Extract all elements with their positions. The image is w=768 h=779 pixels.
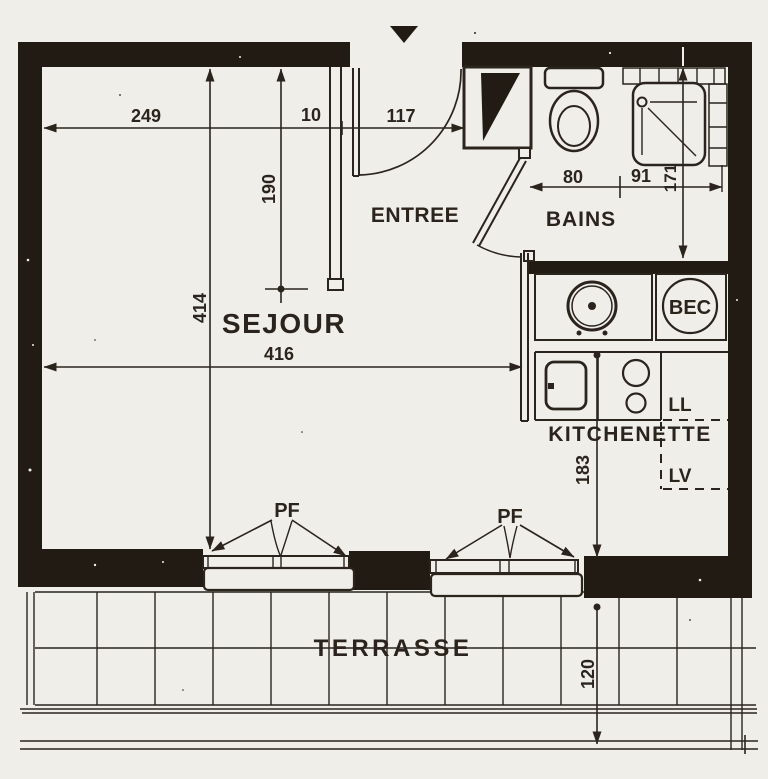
dim-bains-depth: 171 xyxy=(661,164,680,192)
dim-sejour-width: 249 xyxy=(131,106,161,126)
label-bec: BEC xyxy=(669,297,711,319)
dim-kitchen-depth: 183 xyxy=(573,455,593,485)
dim-partition-length: 190 xyxy=(259,174,279,204)
room-label-kitchenette: KITCHENETTE xyxy=(548,423,712,446)
dim-wc: 80 xyxy=(563,167,583,187)
room-label-sejour: SEJOUR xyxy=(222,308,346,339)
label-pf-right: PF xyxy=(497,506,523,528)
wall-bains-bottom xyxy=(529,261,728,274)
balcony-sill-left xyxy=(204,568,354,590)
label-dishwasher: LV xyxy=(669,466,692,487)
label-pf-left: PF xyxy=(274,500,300,522)
wall-left xyxy=(18,42,42,587)
label-washing-machine: LL xyxy=(668,395,692,416)
dim-entry: 117 xyxy=(386,106,415,126)
floor-plan-scan: SEJOUR ENTREE BAINS KITCHENETTE TERRASSE… xyxy=(0,0,768,779)
dim-sejour-depth: 414 xyxy=(190,293,210,323)
dim-interior-width: 416 xyxy=(264,344,294,364)
wall-bottom-left xyxy=(18,549,203,587)
balcony-sill-right xyxy=(431,574,582,596)
dim-shower: 91 xyxy=(631,166,651,186)
wall-right xyxy=(728,42,752,598)
shower-tray xyxy=(633,83,705,165)
floor-plan-drawing: SEJOUR ENTREE BAINS KITCHENETTE TERRASSE… xyxy=(0,0,768,779)
room-label-entree: ENTREE xyxy=(371,204,459,227)
wall-top-right xyxy=(462,42,752,67)
dim-partition: 10 xyxy=(301,105,321,125)
wall-bottom-right xyxy=(584,556,752,598)
wall-bottom-middle xyxy=(349,551,430,590)
dim-terrace-depth: 120 xyxy=(578,659,598,689)
room-label-terrasse: TERRASSE xyxy=(314,635,473,662)
duct-box xyxy=(464,67,531,148)
room-label-bains: BAINS xyxy=(546,208,616,231)
wall-top-left xyxy=(18,42,350,67)
